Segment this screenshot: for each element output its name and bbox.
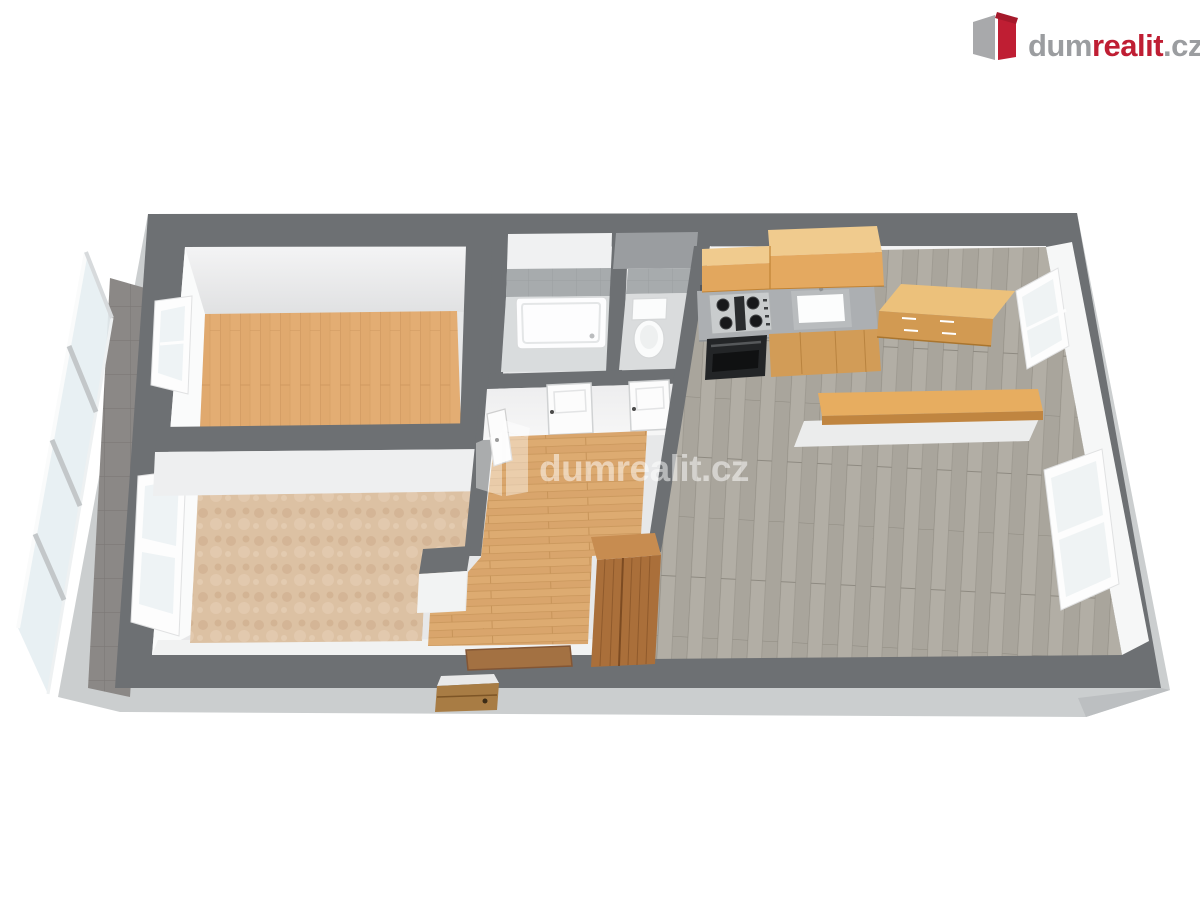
toilet-tank: [632, 298, 667, 320]
wall-bedroom2-jut: [419, 546, 471, 574]
bedroom1-floor: [200, 311, 461, 429]
entrance-door: [435, 674, 499, 712]
bathroom-back-wall: [507, 233, 612, 269]
breakfast-bar: [794, 389, 1043, 447]
wardrobe: [591, 533, 661, 667]
logo-cz: .cz: [1163, 28, 1200, 63]
oven: [705, 335, 767, 380]
bedroom1-window: [151, 296, 192, 394]
floor-plan-graphic: [0, 0, 1200, 900]
wc-door: [629, 380, 671, 431]
wall-bedrooms-divider: [155, 423, 496, 452]
dumrealit-box-icon: [972, 10, 1018, 66]
gas-hob: [709, 292, 772, 334]
bathroom-tile-wall: [506, 268, 611, 297]
wall-bedroom2-jut-face: [417, 571, 467, 613]
bathroom: [489, 233, 628, 374]
living-room-kitchen: [648, 226, 1122, 659]
wall-bedrooms-divider-face: [153, 449, 494, 496]
bathroom-door: [547, 383, 593, 435]
floor-plan-image: dumrealit.cz dumrealit.cz: [0, 0, 1200, 900]
site-logo: dumrealit.cz: [972, 10, 1200, 66]
wc-tile-wall: [626, 268, 694, 294]
logo-dum: dum: [1028, 28, 1092, 63]
logo-realit: realit: [1092, 28, 1163, 63]
bedroom-1: [200, 311, 461, 429]
shaft: [613, 232, 698, 269]
doormat: [466, 646, 572, 670]
site-logo-text: dumrealit.cz: [1028, 16, 1200, 61]
